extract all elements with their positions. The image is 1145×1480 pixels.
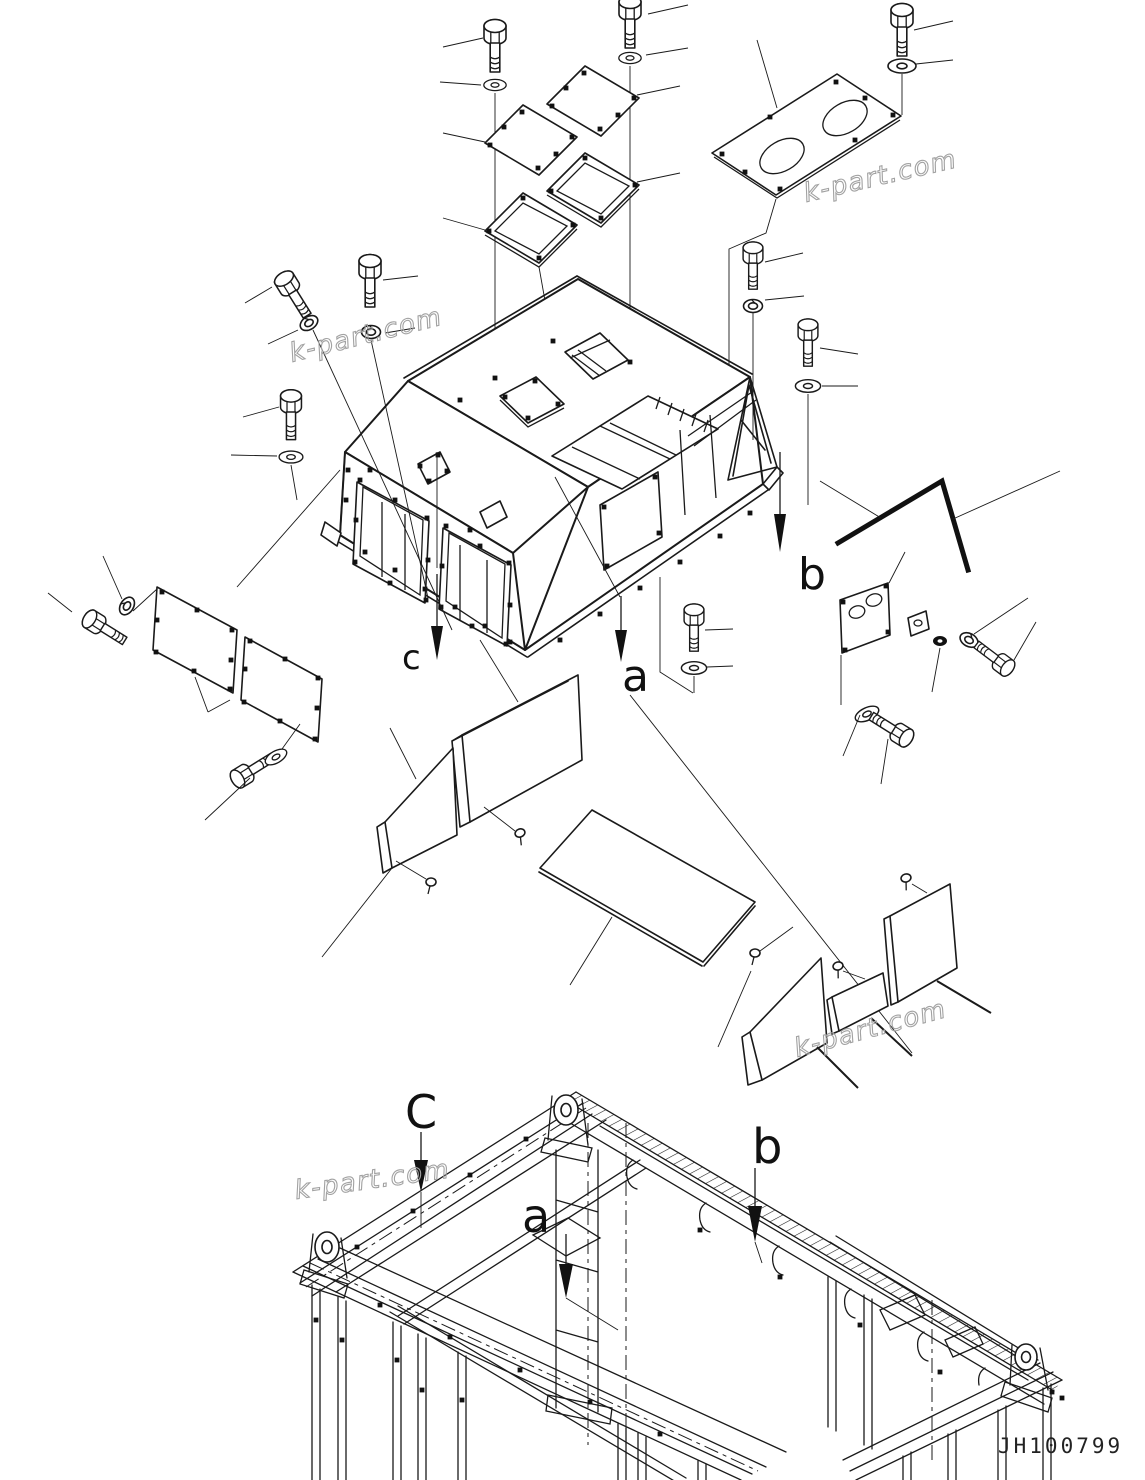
flat-washer-icon [263, 746, 290, 768]
hex-bolt-icon [971, 637, 1018, 679]
hex-bolt-icon [272, 268, 316, 321]
flat-washer-icon [795, 380, 820, 393]
insulation-pad-flat [540, 810, 755, 962]
machine-frame-group [293, 1092, 1064, 1480]
hex-bolt-icon [281, 390, 302, 440]
clip-pin-icon [832, 961, 846, 979]
view-arrows-lower: C a b [405, 1085, 782, 1330]
side-plate-group [820, 471, 1060, 784]
hex-bolt-icon [798, 319, 818, 366]
hex-bolt-icon [619, 0, 641, 48]
view-label-b-upper: b [798, 549, 826, 600]
lock-washer-icon [116, 594, 137, 617]
flat-washer-icon [619, 52, 641, 63]
clip-pin-icon [900, 873, 914, 891]
hex-bolt-icon [743, 242, 763, 289]
hex-bolt-icon [684, 604, 704, 651]
clip-pin-icon [514, 828, 529, 846]
flat-washer-icon [484, 79, 506, 90]
insulation-pad [462, 675, 582, 822]
access-panel [241, 637, 322, 742]
clip-pin-icon [750, 949, 760, 965]
view-label-a-lower: a [522, 1189, 550, 1243]
view-label-a-upper: a [622, 651, 649, 702]
access-panels-group [48, 556, 322, 820]
hex-bolt-icon [359, 255, 381, 308]
view-label-c-lower: C [405, 1085, 437, 1139]
square-washer-plate [908, 611, 929, 636]
insulation-pad [750, 958, 827, 1080]
hex-bolt-icon [866, 708, 917, 750]
insulation-pad [385, 748, 457, 868]
insulation-pads-left-group [322, 640, 755, 985]
view-label-b-lower: b [752, 1119, 782, 1175]
flat-washer-icon [888, 59, 916, 73]
flat-washer-icon [279, 451, 303, 463]
hex-bolt-icon [484, 20, 506, 73]
dark-nut-icon [933, 636, 947, 646]
watermark-text: k-part.com [293, 1154, 452, 1205]
clip-pin-icon [426, 878, 436, 894]
flat-washer-icon [681, 662, 706, 675]
cover-plate [485, 105, 577, 175]
small-mount-plate [840, 583, 890, 653]
hex-bolt-icon [891, 4, 913, 57]
center-bolt-group [660, 577, 733, 693]
cover-plate [547, 66, 639, 136]
insulation-pad [890, 884, 957, 1002]
lock-washer-icon [744, 300, 763, 313]
view-label-c-upper: c [402, 638, 421, 678]
parts-exploded-diagram: c a b C a [0, 0, 1145, 1480]
drawing-number: JH100799 [998, 1434, 1123, 1458]
